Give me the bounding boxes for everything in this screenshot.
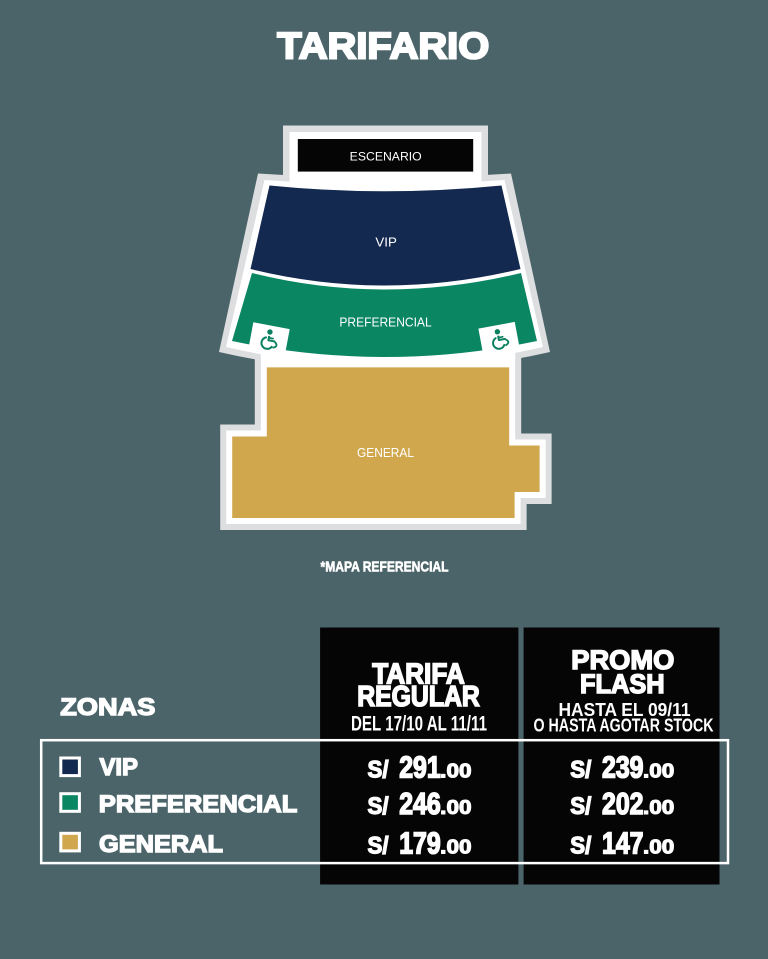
svg-text:VIP: VIP <box>100 754 139 781</box>
svg-text:291: 291 <box>399 750 441 784</box>
svg-text:147: 147 <box>602 826 644 860</box>
svg-text:.00: .00 <box>440 836 471 858</box>
svg-text:.00: .00 <box>643 836 674 858</box>
svg-text:.00: .00 <box>643 760 674 782</box>
svg-text:202: 202 <box>602 787 644 821</box>
svg-text:TARIFARIO: TARIFARIO <box>277 25 489 66</box>
svg-text:S/: S/ <box>368 756 389 783</box>
svg-text:.00: .00 <box>440 760 471 782</box>
svg-text:.00: .00 <box>643 797 674 819</box>
svg-text:ZONAS: ZONAS <box>60 694 155 721</box>
svg-text:239: 239 <box>602 750 644 784</box>
svg-text:GENERAL: GENERAL <box>99 831 223 858</box>
svg-text:GENERAL: GENERAL <box>357 445 414 460</box>
svg-text:O HASTA AGOTAR STOCK: O HASTA AGOTAR STOCK <box>534 715 714 735</box>
svg-text:FLASH: FLASH <box>580 669 665 699</box>
svg-text:DEL 17/10 AL 11/11: DEL 17/10 AL 11/11 <box>351 711 487 735</box>
svg-text:VIP: VIP <box>375 235 397 250</box>
svg-text:*MAPA REFERENCIAL: *MAPA REFERENCIAL <box>321 559 449 576</box>
svg-text:PREFERENCIAL: PREFERENCIAL <box>339 315 431 330</box>
svg-text:S/: S/ <box>368 793 389 820</box>
svg-text:S/: S/ <box>368 832 389 859</box>
svg-text:S/: S/ <box>570 756 591 783</box>
svg-text:ESCENARIO: ESCENARIO <box>350 152 422 164</box>
svg-text:S/: S/ <box>570 793 591 820</box>
svg-text:179: 179 <box>399 826 441 860</box>
svg-text:S/: S/ <box>570 832 591 859</box>
svg-text:.00: .00 <box>440 797 471 819</box>
svg-text:PREFERENCIAL: PREFERENCIAL <box>99 791 298 818</box>
svg-text:REGULAR: REGULAR <box>357 681 480 713</box>
svg-text:246: 246 <box>399 787 441 821</box>
